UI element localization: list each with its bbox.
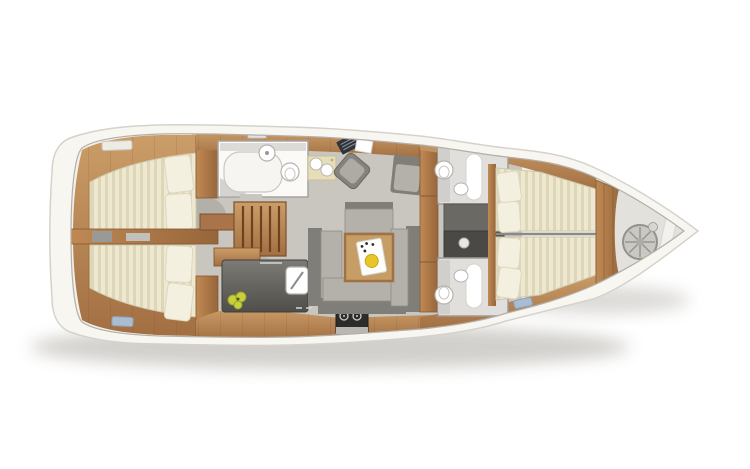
divider-fitting-2 [126, 233, 150, 241]
wheel-hub [636, 238, 644, 246]
aft-cabins [66, 135, 218, 336]
fruit [236, 292, 246, 302]
shower-panel-lower [466, 264, 482, 308]
fruit-leaf [237, 298, 240, 301]
shower-panel-upper [466, 154, 482, 200]
divider-fitting [92, 231, 112, 242]
serving-tray [356, 238, 387, 276]
deck-hatch-blue [112, 316, 133, 326]
toilet [281, 163, 299, 181]
berth-rail [488, 164, 496, 306]
pillow [165, 193, 193, 230]
basin-drain [265, 151, 269, 155]
toilet-lower [435, 286, 453, 304]
interior [40, 110, 710, 360]
sofa-top-cushion [345, 209, 393, 233]
pillow [164, 155, 194, 194]
yacht-floor-plan [0, 0, 750, 469]
basin-left [310, 158, 322, 170]
pillow [497, 237, 521, 268]
deck-hatch-white [102, 140, 132, 150]
wheel-knob [649, 223, 658, 232]
pad-dot [331, 159, 334, 162]
toilet-upper [435, 161, 453, 179]
pillow [164, 283, 194, 322]
engine-cap [459, 238, 469, 248]
head-aft [218, 141, 308, 199]
basin-lower [454, 270, 468, 282]
pillow [496, 267, 522, 300]
fruit [234, 301, 242, 309]
pillow [496, 171, 522, 204]
sofa-left-back [308, 228, 322, 306]
head-aft-door-gap [240, 194, 262, 199]
pillow [497, 201, 521, 232]
floor-plan-svg [0, 0, 750, 469]
stair-rail [200, 214, 234, 230]
pillow [165, 245, 193, 282]
basin-right [321, 164, 333, 176]
basin-upper [454, 183, 468, 195]
